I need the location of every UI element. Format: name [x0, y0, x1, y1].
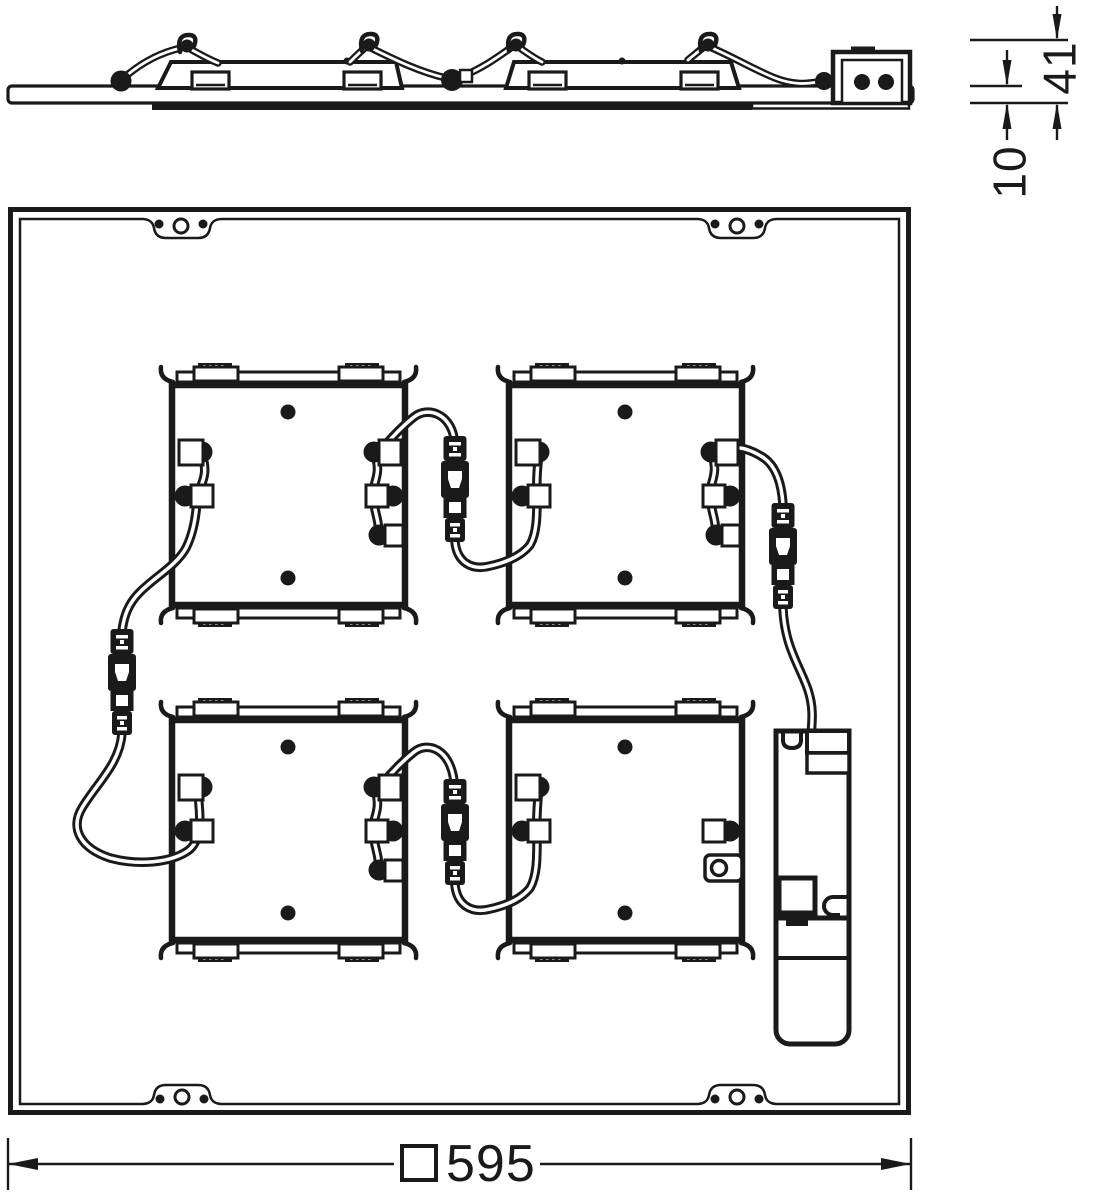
arrow-right-icon: [881, 1158, 911, 1170]
technical-drawing-page: 41 10: [0, 0, 1103, 1200]
connector-bottom-middle: [441, 779, 469, 885]
plan-view: [11, 210, 909, 1113]
square-symbol-icon: [402, 1146, 436, 1180]
driver-cable-cap: [815, 72, 833, 90]
module-profile-1: [158, 58, 402, 90]
arrow-down-icon: [1003, 60, 1012, 86]
arrow-left-icon: [8, 1158, 38, 1170]
arrow-down-icon: [1053, 14, 1062, 40]
connector-left: [108, 629, 136, 735]
driver-box: [776, 731, 849, 1044]
driver-profile: [833, 47, 910, 104]
arrow-up-icon: [1053, 103, 1062, 129]
panel-plate-profile: [8, 86, 913, 103]
height-dimensions: 41 10: [970, 6, 1086, 199]
technical-drawing: 41 10: [0, 0, 1103, 1200]
driver-lower-body: [776, 918, 849, 1044]
arrow-up-icon: [1003, 103, 1012, 129]
side-view: [8, 34, 913, 110]
connector-top-middle: [441, 436, 469, 542]
connector-right: [769, 503, 797, 609]
driver-socket: [705, 855, 742, 881]
driver-terminal-block: [807, 731, 849, 753]
dimension-plate-thickness: 10: [984, 145, 1036, 198]
cable-end-cap: [111, 71, 132, 92]
dimension-total-height: 41: [1034, 41, 1086, 94]
driver-clip-left: [779, 878, 815, 913]
dimension-square-width: 595: [446, 1135, 536, 1193]
width-dimension: 595: [8, 1135, 911, 1193]
